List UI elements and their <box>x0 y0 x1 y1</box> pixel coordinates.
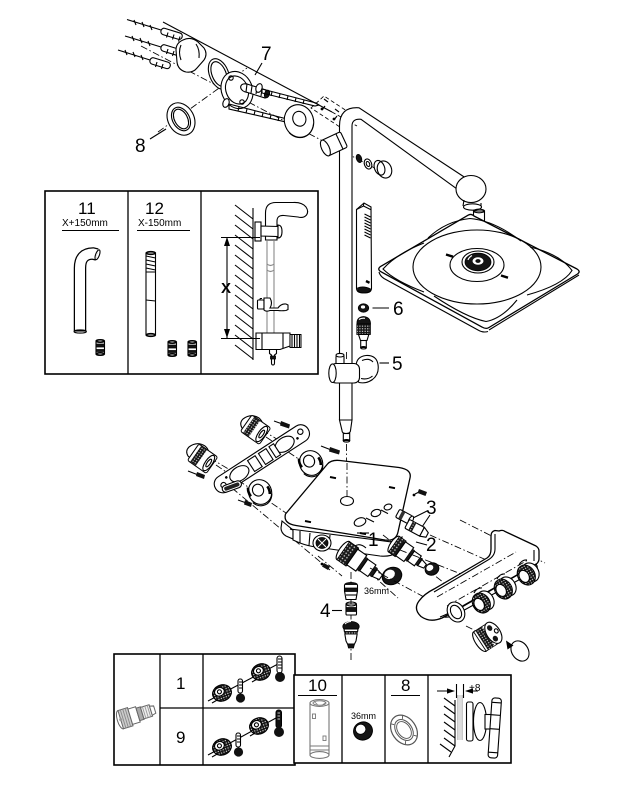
svg-text:9: 9 <box>176 728 185 747</box>
svg-text:12: 12 <box>145 199 164 218</box>
svg-text:36mm: 36mm <box>364 586 389 596</box>
svg-text:1: 1 <box>368 530 379 551</box>
svg-text:X: X <box>221 280 231 297</box>
svg-text:2: 2 <box>426 535 437 556</box>
svg-text:6: 6 <box>393 299 404 320</box>
svg-text:5: 5 <box>392 354 403 375</box>
svg-text:X-150mm: X-150mm <box>138 218 181 229</box>
svg-text:1: 1 <box>176 674 185 693</box>
svg-text:+8: +8 <box>469 683 481 694</box>
svg-text:7: 7 <box>261 44 272 65</box>
svg-text:36mm: 36mm <box>351 711 376 721</box>
svg-text:3: 3 <box>426 498 437 519</box>
svg-text:10: 10 <box>308 676 327 695</box>
svg-text:11: 11 <box>78 199 96 218</box>
svg-text:8: 8 <box>401 676 410 695</box>
svg-text:8: 8 <box>135 136 146 157</box>
svg-text:X+150mm: X+150mm <box>62 218 108 229</box>
svg-text:4: 4 <box>320 601 331 622</box>
